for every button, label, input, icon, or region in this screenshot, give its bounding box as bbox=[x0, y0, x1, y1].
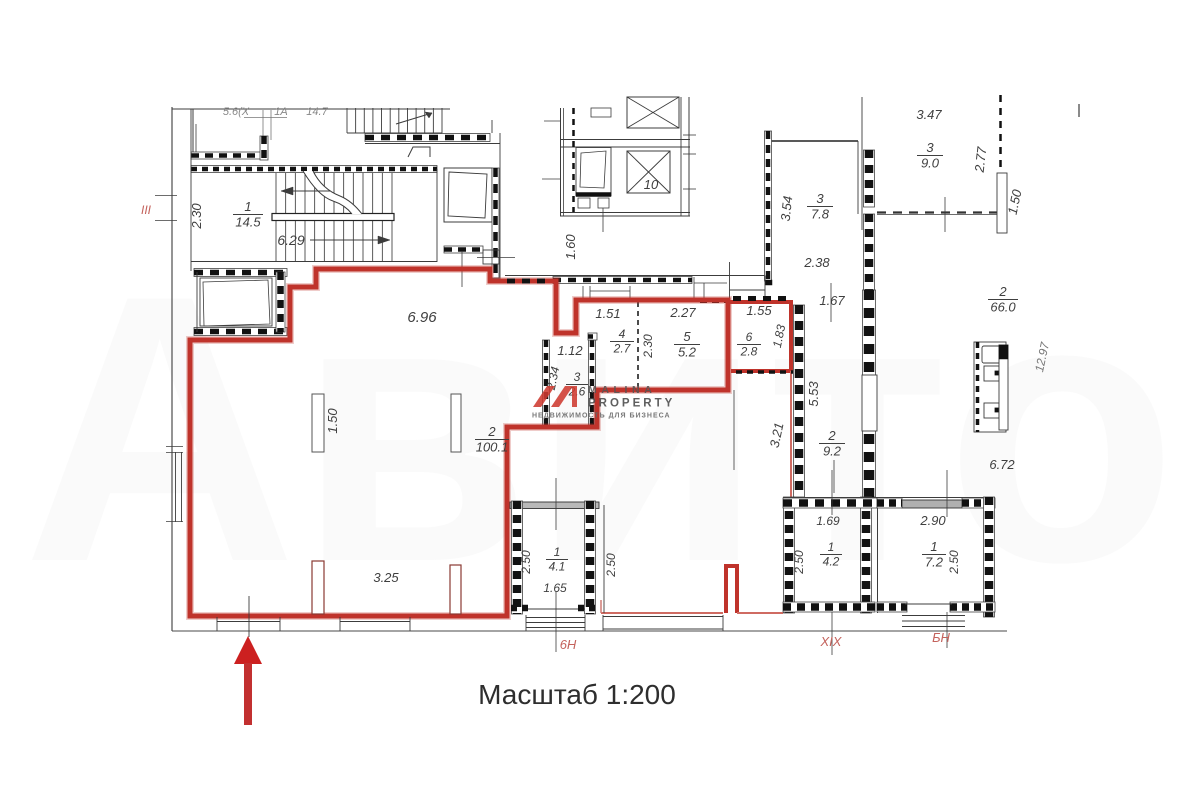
svg-text:3.47: 3.47 bbox=[916, 107, 942, 122]
svg-text:6.96: 6.96 bbox=[407, 309, 437, 326]
svg-text:2.77: 2.77 bbox=[972, 145, 990, 173]
svg-text:1.69: 1.69 bbox=[816, 514, 840, 528]
svg-text:2: 2 bbox=[827, 428, 836, 443]
svg-text:14.5: 14.5 bbox=[235, 214, 261, 229]
svg-text:2: 2 bbox=[487, 424, 496, 439]
svg-text:XIX: XIX bbox=[820, 634, 843, 649]
svg-text:2.8: 2.8 bbox=[740, 345, 758, 359]
svg-text:3.25: 3.25 bbox=[373, 570, 399, 585]
svg-text:1: 1 bbox=[828, 540, 835, 554]
svg-text:9.0: 9.0 bbox=[921, 155, 940, 170]
svg-text:3: 3 bbox=[816, 191, 824, 206]
svg-text:2.50: 2.50 bbox=[947, 550, 961, 575]
svg-text:2.30: 2.30 bbox=[189, 203, 204, 230]
svg-text:2.7: 2.7 bbox=[613, 342, 632, 356]
svg-text:2.30: 2.30 bbox=[641, 334, 655, 359]
svg-text:4.2: 4.2 bbox=[823, 555, 840, 569]
svg-text:2.50: 2.50 bbox=[792, 550, 806, 575]
svg-text:14.7: 14.7 bbox=[306, 106, 328, 118]
svg-text:2.38: 2.38 bbox=[803, 255, 830, 270]
svg-text:1: 1 bbox=[930, 539, 937, 554]
svg-text:4.1: 4.1 bbox=[549, 560, 566, 574]
svg-text:III: III bbox=[141, 203, 152, 217]
svg-text:9.2: 9.2 bbox=[823, 443, 842, 458]
svg-text:7.8: 7.8 bbox=[811, 206, 830, 221]
svg-text:Масштаб 1:200: Масштаб 1:200 bbox=[478, 679, 676, 710]
svg-text:1.50: 1.50 bbox=[325, 408, 340, 434]
svg-text:БН: БН bbox=[932, 630, 950, 645]
svg-text:1А: 1А bbox=[274, 106, 287, 118]
svg-text:5.6(Х: 5.6(Х bbox=[223, 106, 250, 118]
svg-text:6Н: 6Н bbox=[560, 637, 577, 652]
svg-text:1: 1 bbox=[244, 199, 251, 214]
svg-text:2.27: 2.27 bbox=[669, 305, 696, 320]
svg-text:1.12: 1.12 bbox=[557, 343, 583, 358]
svg-text:6.72: 6.72 bbox=[989, 457, 1015, 472]
svg-text:10: 10 bbox=[644, 177, 659, 192]
svg-text:1.51: 1.51 bbox=[595, 306, 620, 321]
svg-text:5: 5 bbox=[683, 329, 691, 344]
svg-text:6: 6 bbox=[746, 330, 753, 344]
svg-text:2: 2 bbox=[998, 284, 1007, 299]
svg-text:2.90: 2.90 bbox=[919, 513, 946, 528]
svg-text:1.60: 1.60 bbox=[563, 234, 578, 260]
svg-text:5.2: 5.2 bbox=[678, 344, 697, 359]
svg-text:2.50: 2.50 bbox=[519, 550, 533, 575]
svg-text:66.0: 66.0 bbox=[990, 299, 1016, 314]
svg-text:100.1: 100.1 bbox=[476, 439, 509, 454]
svg-text:PROPERTY: PROPERTY bbox=[588, 398, 675, 410]
svg-text:6.29: 6.29 bbox=[277, 232, 304, 248]
svg-text:7.2: 7.2 bbox=[925, 554, 944, 569]
svg-text:3: 3 bbox=[574, 370, 581, 384]
svg-text:1: 1 bbox=[554, 545, 561, 559]
svg-text:4: 4 bbox=[619, 327, 626, 341]
svg-text:1.65: 1.65 bbox=[543, 581, 567, 595]
svg-text:2.50: 2.50 bbox=[604, 553, 618, 578]
svg-text:1.55: 1.55 bbox=[746, 303, 772, 318]
svg-text:НЕДВИЖИМОСТЬ ДЛЯ БИЗНЕСА: НЕДВИЖИМОСТЬ ДЛЯ БИЗНЕСА bbox=[532, 413, 671, 420]
svg-text:3: 3 bbox=[926, 140, 934, 155]
svg-text:5.53: 5.53 bbox=[806, 381, 821, 407]
svg-text:MALINA: MALINA bbox=[588, 384, 656, 396]
svg-text:3.54: 3.54 bbox=[778, 195, 796, 222]
svg-text:1.67: 1.67 bbox=[819, 293, 845, 308]
